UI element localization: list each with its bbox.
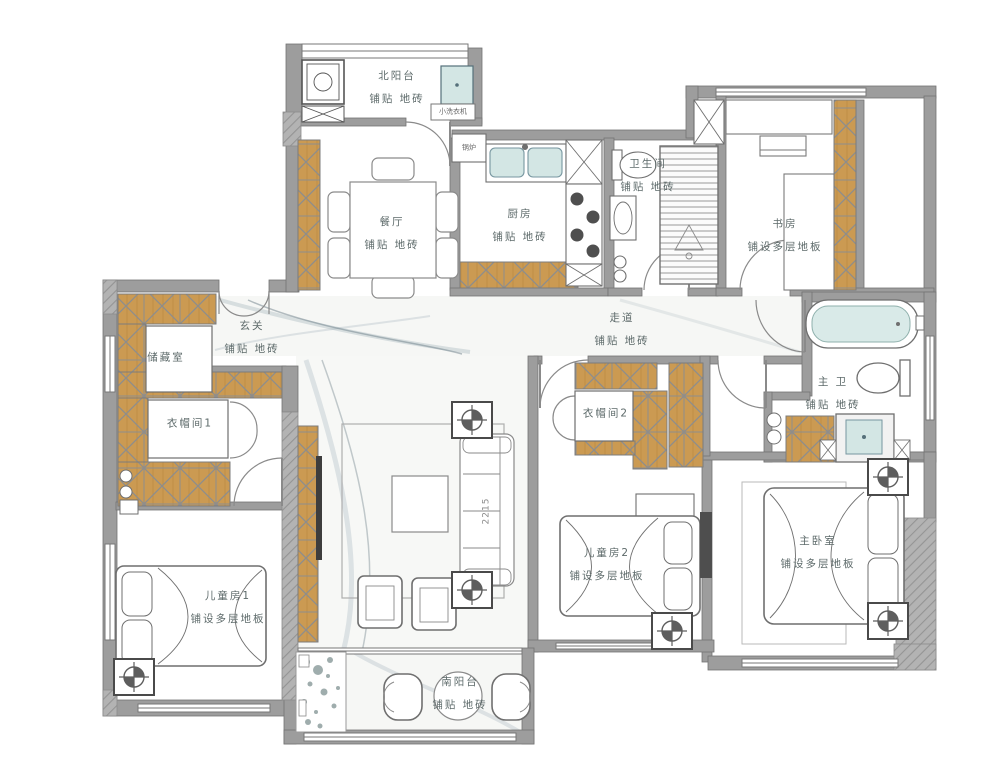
room-name: 储藏室 [147, 347, 185, 370]
dining-chair [436, 192, 458, 232]
room-label-bathroom: 卫生间 铺贴 地砖 [620, 153, 675, 199]
study-furniture [726, 100, 834, 290]
room-label-cloakroom2: 衣帽间2 [583, 403, 629, 426]
dining-chair [372, 276, 414, 298]
room-floor: 铺贴 地砖 [432, 694, 487, 717]
kitchen-sink-basin [490, 148, 524, 177]
boiler-annotation: 锅炉 [462, 144, 476, 153]
room-floor: 铺设多层地板 [781, 553, 856, 576]
sliding-door-panel [700, 512, 712, 578]
cloakroom2-wardrobe-col [669, 363, 703, 467]
room-label-study: 书房 铺设多层地板 [748, 213, 823, 259]
room-label-dining: 餐厅 铺贴 地砖 [364, 211, 419, 257]
study-cabinet [726, 100, 832, 134]
room-name: 书房 [748, 213, 823, 236]
floorplan: 北阳台 铺贴 地砖 餐厅 铺贴 地砖 厨房 铺贴 地砖 卫生间 铺贴 地砖 书房… [0, 0, 1000, 783]
balcony-chair [492, 674, 530, 720]
room-floor: 铺贴 地砖 [620, 176, 675, 199]
sofa-dimension: 2215 [476, 498, 499, 525]
balcony-chair [384, 674, 422, 720]
room-label-storage: 储藏室 [147, 347, 185, 370]
room-label-master-bedroom: 主卧室 铺设多层地板 [781, 530, 856, 576]
coffee-table [392, 476, 448, 532]
floor-target [452, 572, 492, 608]
pillow [664, 568, 692, 610]
floor-target [652, 613, 692, 649]
cloakroom1-wardrobe-bottom [118, 462, 230, 506]
study-chair [760, 136, 806, 156]
window-balcony-bottom [304, 733, 516, 741]
tv [316, 456, 322, 560]
study-wardrobe [834, 100, 856, 290]
dining-cabinet [298, 140, 320, 290]
room-floor: 铺贴 地砖 [594, 330, 649, 353]
window-child2-bottom [556, 643, 660, 649]
window-child1-bottom [138, 704, 270, 712]
room-name: 儿童房1 [191, 585, 266, 608]
window-left-upper [105, 336, 115, 392]
pipe-shaft [694, 100, 724, 144]
room-floor: 铺设多层地板 [748, 236, 823, 259]
window-left-lower [105, 544, 115, 640]
cloakroom2-wardrobe-right [633, 391, 667, 469]
room-floor: 铺贴 地砖 [224, 338, 279, 361]
room-floor: 铺贴 地砖 [805, 394, 860, 417]
door-master-bedroom [718, 360, 766, 408]
pillow [664, 522, 692, 564]
cloakroom1-wardrobe-left [118, 398, 148, 462]
room-floor: 铺设多层地板 [191, 608, 266, 631]
room-name: 主卧室 [781, 530, 856, 553]
room-name: 卫生间 [620, 153, 675, 176]
room-label-master-bath: 主 卫 铺贴 地砖 [805, 371, 860, 417]
room-name: 衣帽间2 [583, 403, 629, 426]
floor-target [868, 603, 908, 639]
kitchen-sink-basin [528, 148, 562, 177]
room-label-cloakroom1: 衣帽间1 [167, 413, 213, 436]
pillow [122, 620, 152, 664]
floor-target [452, 402, 492, 438]
window-top-right [716, 88, 866, 96]
child2-cabinet [636, 494, 694, 518]
floor-target [868, 459, 908, 495]
room-label-corridor: 走道 铺贴 地砖 [594, 307, 649, 353]
washer-annotation: 小洗衣机 [439, 108, 467, 117]
pillow [122, 572, 152, 616]
cloakroom2-wardrobe-top [575, 363, 657, 389]
window-north-balcony [302, 44, 468, 58]
room-label-child2: 儿童房2 铺设多层地板 [570, 542, 645, 588]
dining-chair [328, 192, 350, 232]
window-master-bath [926, 336, 934, 420]
dining-chair [372, 158, 414, 180]
room-name: 南阳台 [432, 671, 487, 694]
floor-target [114, 659, 154, 695]
room-label-entry: 玄关 铺贴 地砖 [224, 315, 279, 361]
dining-chair [436, 238, 458, 278]
room-label-kitchen: 厨房 铺贴 地砖 [492, 203, 547, 249]
room-floor: 铺设多层地板 [570, 565, 645, 588]
door-child1 [234, 458, 282, 506]
door-cloakroom2 [553, 396, 575, 440]
door-cloakroom1 [230, 402, 257, 458]
kitchen-base-cabinet [460, 262, 578, 288]
window-bedroom-bottom [742, 659, 898, 667]
room-name: 衣帽间1 [167, 413, 213, 436]
tv-wall-cabinet [298, 426, 318, 642]
room-name: 餐厅 [364, 211, 419, 234]
cloakroom2-wardrobe-bottom [575, 441, 635, 455]
master-toilet-tank [900, 360, 910, 396]
dining-chair [328, 238, 350, 278]
room-floor: 铺贴 地砖 [492, 226, 547, 249]
room-name: 主 卫 [805, 371, 860, 394]
pillow [868, 494, 898, 554]
room-name: 走道 [594, 307, 649, 330]
room-name: 儿童房2 [570, 542, 645, 565]
room-name: 北阳台 [369, 65, 424, 88]
room-floor: 铺贴 地砖 [364, 234, 419, 257]
room-name: 玄关 [224, 315, 279, 338]
room-label-north-balcony: 北阳台 铺贴 地砖 [369, 65, 424, 111]
room-label-child1: 儿童房1 铺设多层地板 [191, 585, 266, 631]
master-toilet-bowl [857, 363, 899, 393]
room-floor: 铺贴 地砖 [369, 88, 424, 111]
room-label-south-balcony: 南阳台 铺贴 地砖 [432, 671, 487, 717]
storage-cabinet-top [118, 294, 216, 324]
room-name: 厨房 [492, 203, 547, 226]
